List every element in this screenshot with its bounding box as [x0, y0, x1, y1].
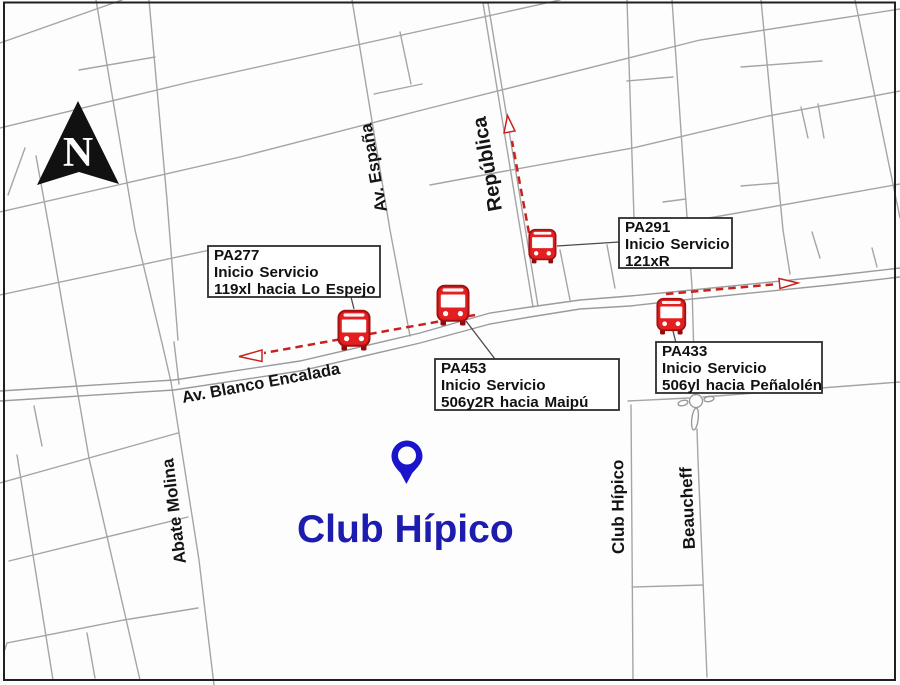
svg-text:PA277: PA277 — [214, 247, 259, 264]
svg-text:N: N — [63, 130, 93, 176]
svg-text:Inicio Servicio: Inicio Servicio — [625, 236, 729, 253]
svg-text:Club Hípico: Club Hípico — [608, 460, 628, 555]
svg-text:Inicio Servicio: Inicio Servicio — [662, 360, 766, 377]
svg-text:PA453: PA453 — [441, 360, 486, 377]
svg-text:Inicio Servicio: Inicio Servicio — [214, 264, 318, 281]
svg-text:Beaucheff: Beaucheff — [676, 466, 699, 549]
svg-text:119xl hacia Lo Espejo: 119xl hacia Lo Espejo — [214, 281, 376, 298]
svg-text:PA291: PA291 — [625, 219, 671, 236]
svg-text:Club Hípico: Club Hípico — [297, 508, 514, 551]
svg-text:PA433: PA433 — [662, 343, 707, 360]
svg-text:506yl hacia Peñalolén: 506yl hacia Peñalolén — [662, 377, 822, 394]
svg-text:121xR: 121xR — [625, 253, 670, 270]
svg-text:Inicio Servicio: Inicio Servicio — [441, 377, 545, 394]
svg-text:506y2R hacia Maipú: 506y2R hacia Maipú — [441, 394, 588, 411]
